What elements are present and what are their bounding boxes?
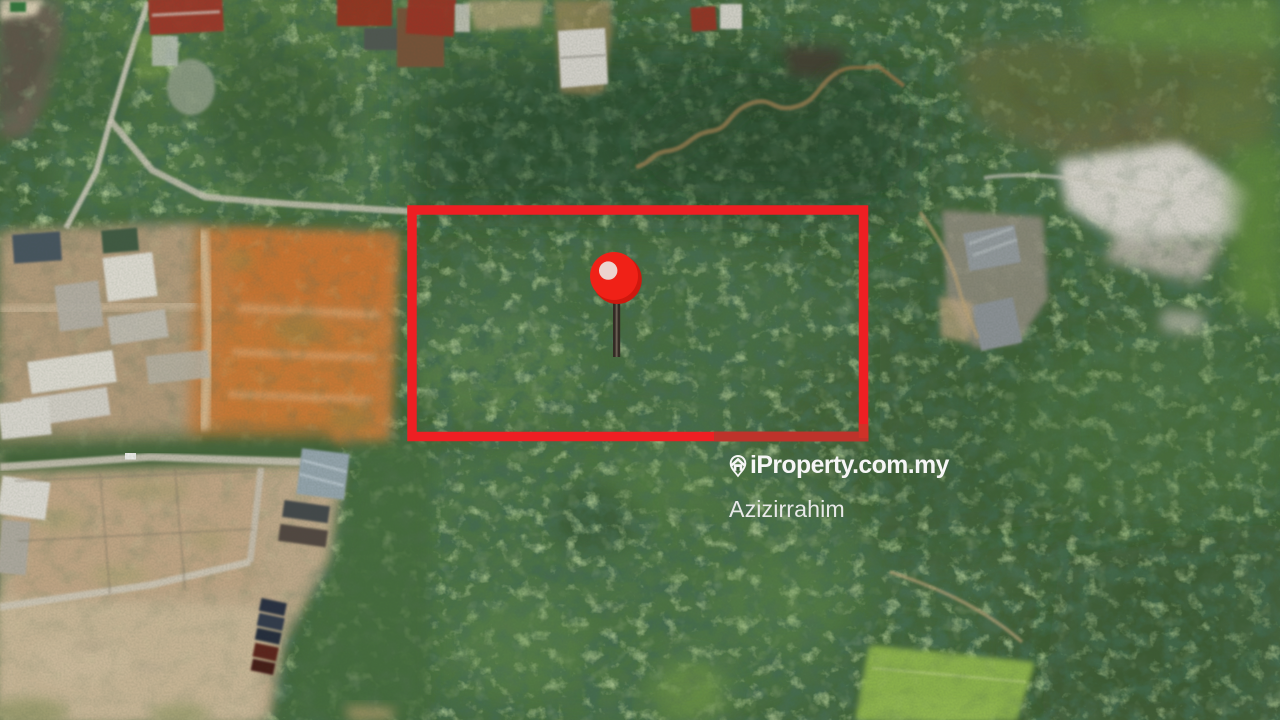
svg-text:Azizirrahim: Azizirrahim — [729, 496, 845, 522]
svg-text:iProperty.com.my: iProperty.com.my — [750, 452, 950, 479]
